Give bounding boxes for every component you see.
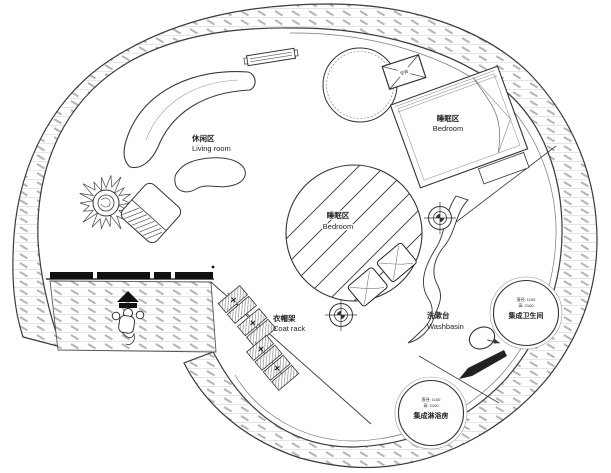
label-coat-cn: 衣帽架 — [273, 313, 296, 323]
bathroom-pod: 直径: 1100 高: 2100 集成卫生间 — [490, 277, 562, 349]
label-washbasin-cn: 洗漱台 — [427, 310, 450, 320]
shower-dim-height: 高: 2100 — [423, 402, 439, 408]
floor-plan: 空调 — [0, 0, 611, 473]
bathroom-pod-label: 集成卫生间 — [508, 311, 544, 320]
label-bedroom-upper-en: Bedroom — [433, 124, 463, 133]
floor-plan-canvas: 空调 — [0, 0, 611, 473]
label-living-en: Living room — [192, 144, 231, 153]
label-bedroom-upper-cn: 睡眠区 — [437, 113, 460, 123]
tv-shelf — [244, 48, 299, 66]
label-coat-rack: 衣帽架 Coat rack — [273, 313, 305, 333]
label-washbasin-en: Washbasin — [427, 322, 464, 331]
shower-pod: 直径: 1100 高: 2100 集成淋浴房 — [395, 377, 467, 449]
shower-pod-label: 集成淋浴房 — [413, 411, 449, 420]
label-bedroom-center-en: Bedroom — [323, 222, 353, 231]
bathroom-dim-height: 高: 2100 — [518, 302, 534, 308]
shower-dim-diameter: 直径: 1100 — [422, 396, 442, 402]
coffee-table — [175, 158, 246, 192]
round-table — [323, 48, 397, 122]
label-coat-en: Coat rack — [273, 324, 305, 333]
label-living-cn: 休闲区 — [191, 133, 215, 143]
ac-unit: 空调 — [382, 55, 426, 90]
door-end-dot — [212, 266, 215, 269]
entrance-door-wall — [46, 266, 214, 279]
lounge-chair — [119, 181, 184, 246]
potted-plant — [80, 175, 131, 229]
label-bedroom-center-cn: 睡眠区 — [327, 210, 350, 220]
bathroom-dim-diameter: 直径: 1100 — [517, 296, 537, 302]
curved-sofa — [124, 72, 255, 168]
flow-arrow — [459, 350, 507, 379]
label-living-room: 休闲区 Living room — [191, 133, 231, 153]
column-marker-lower — [325, 299, 357, 331]
